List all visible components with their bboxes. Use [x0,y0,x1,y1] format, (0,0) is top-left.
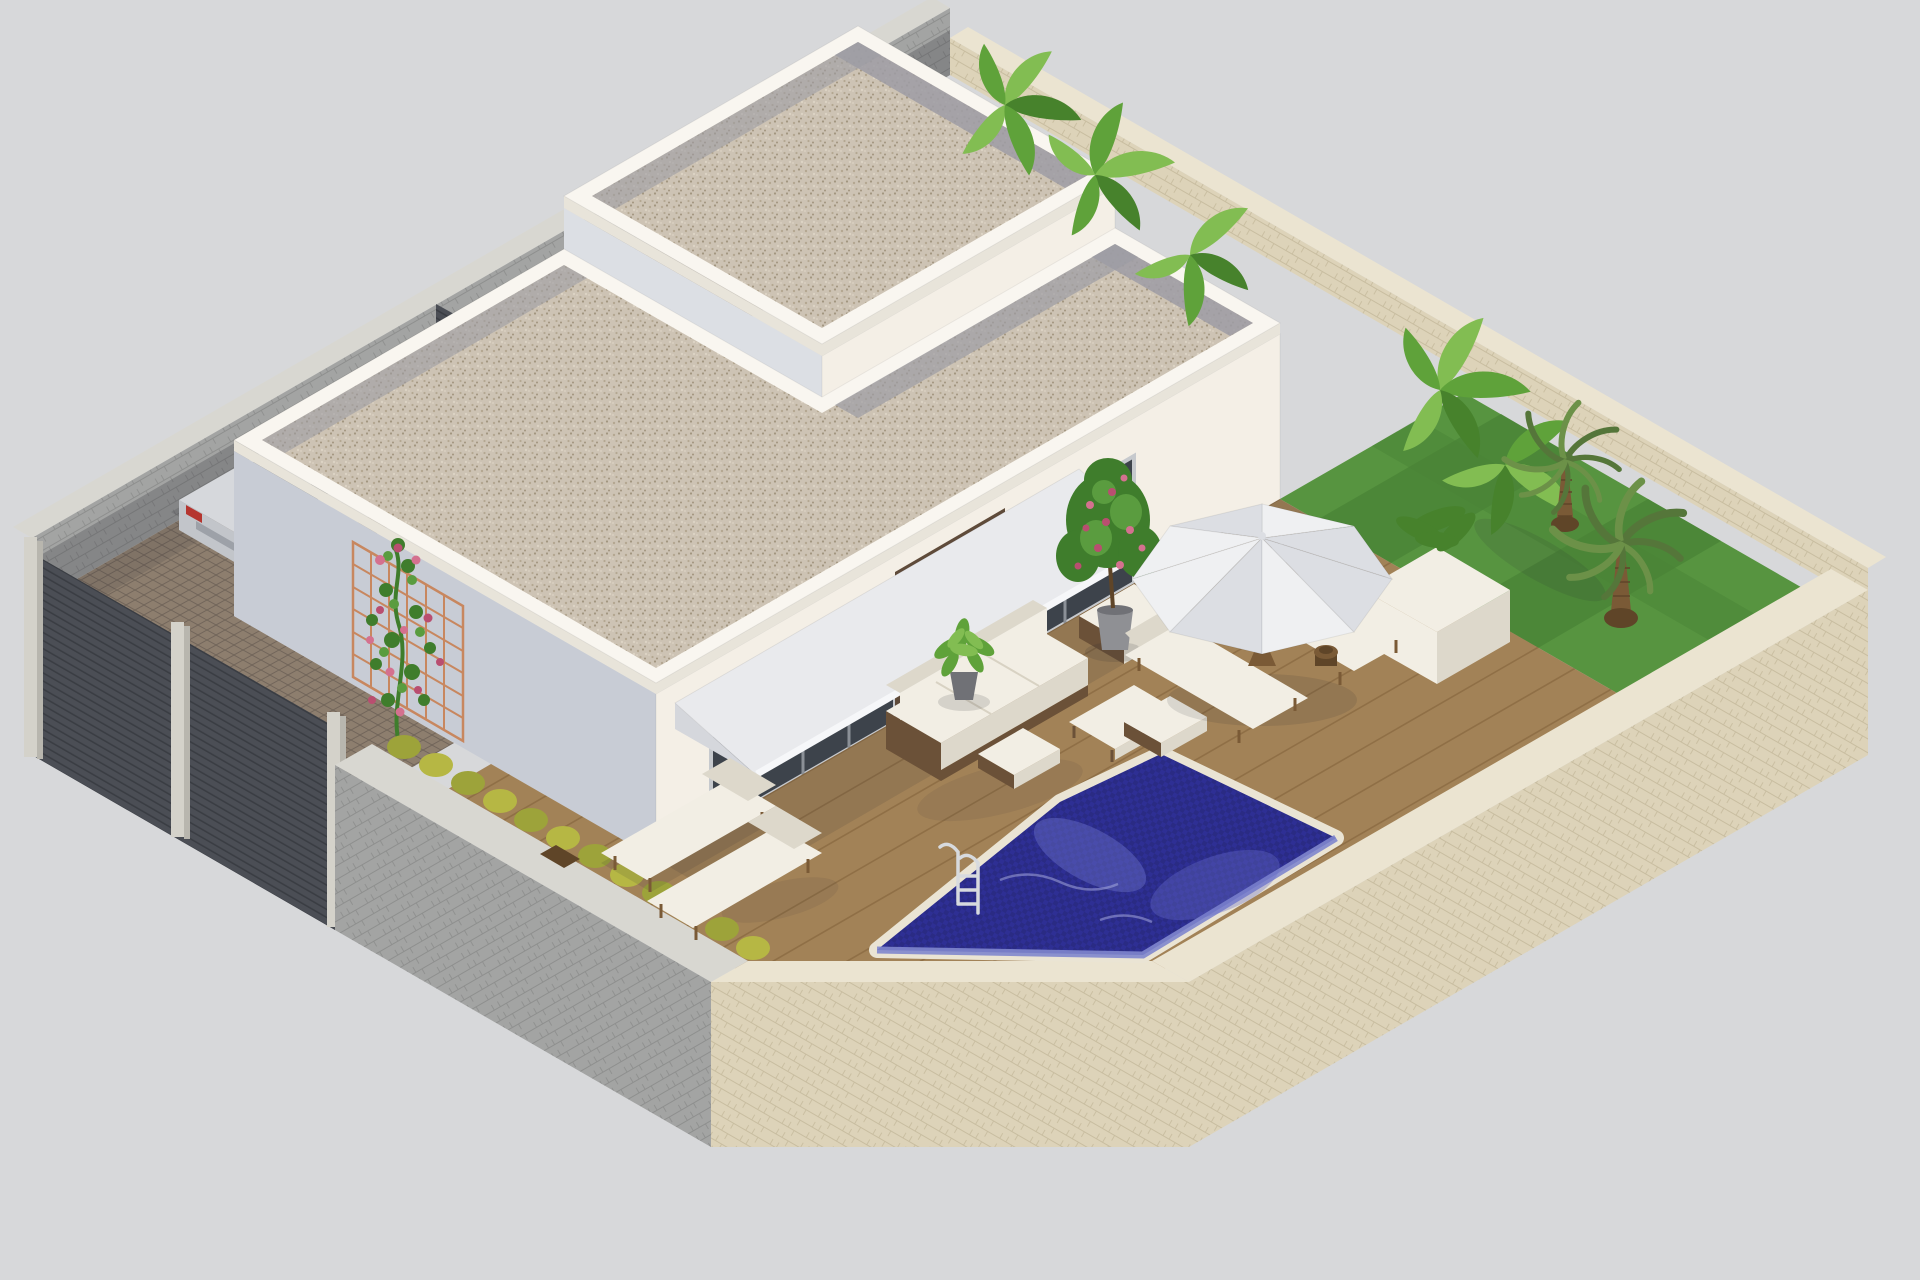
side-table-round [1314,645,1338,666]
fence-pillar-mid [171,622,190,839]
chamfer-wall-cap [711,961,1189,982]
villa-isometric-render [0,0,1920,1280]
fence-pillar-west [24,537,43,759]
chamfer-wall-face [711,982,1189,1147]
parasol-canopy [1132,504,1392,654]
parasol-finial [1258,532,1266,540]
render-canvas [0,0,1920,1280]
